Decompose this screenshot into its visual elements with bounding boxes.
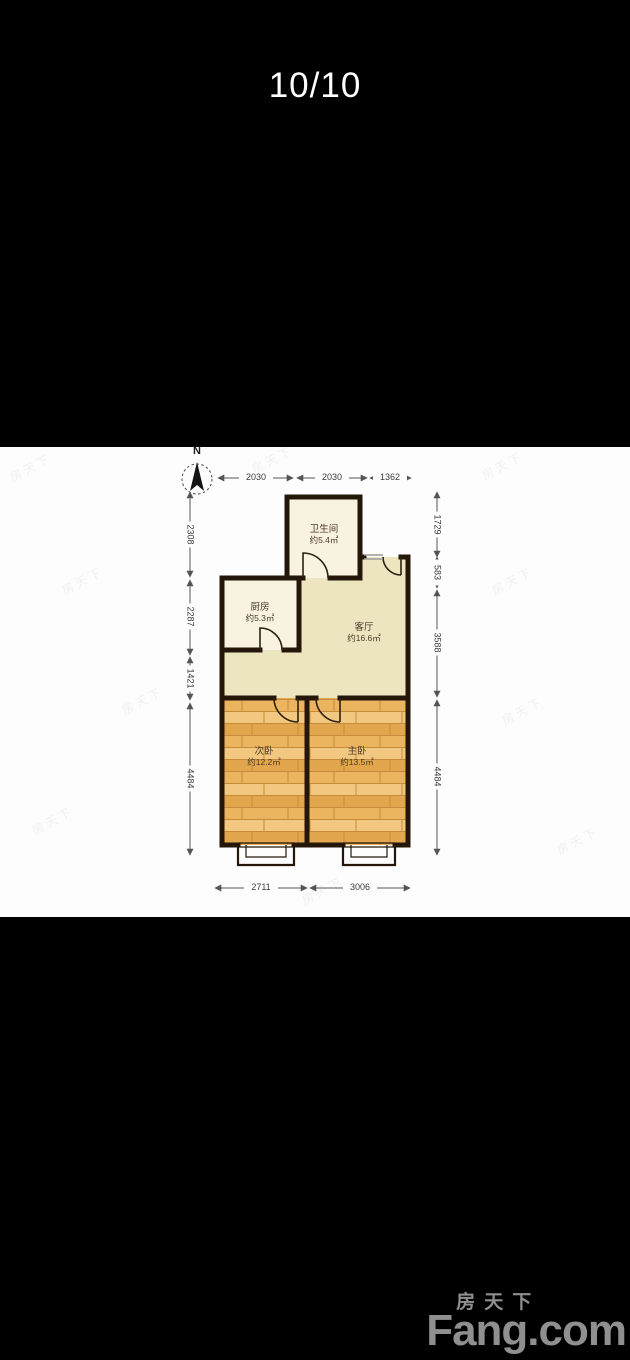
fang-logo: 房天下 Fang.com [426, 1287, 626, 1352]
room-name: 客厅 [324, 622, 404, 633]
room-area: 约5.4㎡ [284, 535, 364, 545]
dim-bottom-1: 2711 [244, 882, 278, 893]
room-name: 卫生间 [284, 524, 364, 535]
dim-bottom-2: 3006 [343, 882, 377, 893]
dim-right-2: 583 [432, 560, 443, 586]
dim-right-4: 4484 [432, 764, 443, 790]
dim-left-4: 4484 [185, 766, 196, 792]
room-name: 主卧 [317, 746, 397, 757]
fang-logo-english: Fang.com [426, 1310, 626, 1352]
room-label-living: 客厅 约16.6㎡ [324, 622, 404, 644]
room-label-bedroom1: 主卧 约13.5㎡ [317, 746, 397, 768]
floorplan-image[interactable]: 房天下 房天下 房天下 房天下 房天下 房天下 房天下 房天下 房天下 房天下 [0, 447, 630, 917]
room-area: 约13.5㎡ [317, 757, 397, 767]
room-floors [222, 497, 408, 845]
dim-left-1: 2308 [185, 522, 196, 548]
room-label-bathroom: 卫生间 约5.4㎡ [284, 524, 364, 546]
room-name: 厨房 [220, 602, 300, 613]
room-area: 约16.6㎡ [324, 633, 404, 643]
photo-counter: 10/10 [0, 66, 630, 106]
dim-top-1: 2030 [239, 472, 273, 483]
compass-north-label: N [190, 445, 204, 457]
dim-left-3: 1421 [185, 666, 196, 692]
room-name: 次卧 [224, 746, 304, 757]
compass-icon [182, 462, 212, 494]
dim-top-3: 1362 [373, 472, 407, 483]
bay-window-right [343, 843, 395, 865]
dim-right-1: 1729 [432, 512, 443, 538]
dim-right-3: 3588 [432, 630, 443, 656]
dim-left-2: 2287 [185, 604, 196, 630]
dim-top-2: 2030 [315, 472, 349, 483]
floorplan-graphic [0, 447, 630, 917]
bay-window-left [238, 843, 294, 865]
room-area: 约5.3㎡ [220, 613, 300, 623]
room-area: 约12.2㎡ [224, 757, 304, 767]
room-label-bedroom2: 次卧 约12.2㎡ [224, 746, 304, 768]
room-label-kitchen: 厨房 约5.3㎡ [220, 602, 300, 624]
